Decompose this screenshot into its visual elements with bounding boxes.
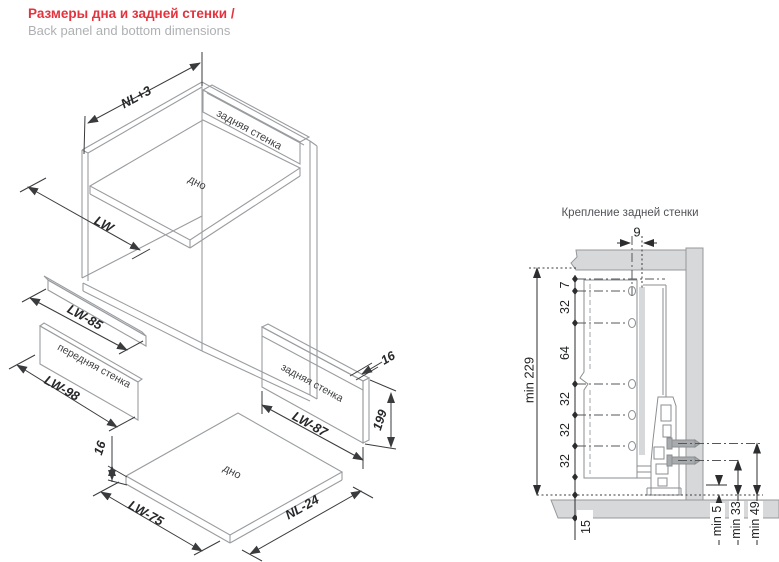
page-title: Размеры дна и задней стенки / [28, 6, 235, 23]
dim-chain-32d: 32 [558, 454, 572, 468]
exploded-view-drawing: NL+3 LW LW-85 LW-98 LW-87 199 16 LW-75 N… [0, 40, 470, 562]
label-bottom: дно [186, 173, 208, 192]
page-canvas: Размеры дна и задней стенки / Back panel… [0, 0, 779, 562]
dim-chain-32a: 32 [558, 300, 572, 314]
dim-back-panel-height: 199 [370, 408, 390, 432]
dim-overall-height: min 229 [522, 357, 537, 403]
label-bottom-part: дно [221, 462, 243, 481]
dim-chain-64: 64 [558, 346, 572, 360]
front-panel-part [40, 323, 142, 420]
dim-chain-7: 7 [558, 281, 572, 288]
dim-drawer-width: LW [92, 213, 118, 236]
rail-part [44, 276, 146, 346]
dim-back-panel-thickness: 16 [378, 348, 398, 368]
dim-back-panel-width: LW-87 [290, 408, 331, 440]
mounting-view-drawing: Крепление задней стенки 9 7 32 64 32 32 … [520, 200, 779, 562]
dim-clearance-min33: min 33 [729, 501, 743, 539]
back-panel-section [580, 280, 637, 478]
dim-floor-thickness: 15 [579, 520, 593, 534]
dim-bottom-width: LW-75 [126, 497, 167, 529]
dim-clearance-min5: min 5 [710, 506, 724, 537]
dim-clearance-min49: min 49 [748, 501, 762, 539]
dim-rail-width: LW-85 [65, 301, 106, 333]
page-subtitle: Back panel and bottom dimensions [28, 23, 235, 39]
mounting-title: Крепление задней стенки [561, 207, 698, 219]
dim-drawer-depth: NL+3 [118, 82, 154, 111]
dim-bottom-thickness: 16 [91, 438, 109, 457]
dim-chain-32c: 32 [558, 423, 572, 437]
dim-chain-32b: 32 [558, 392, 572, 406]
label-back-panel-part: задняя стенка [279, 361, 346, 405]
dim-hole-offset: 9 [633, 225, 640, 240]
cabinet-top-panel [571, 250, 686, 270]
page-header: Размеры дна и задней стенки / Back panel… [28, 6, 235, 39]
drawer-body-wireframe [82, 82, 317, 401]
dim-bottom-depth: NL-24 [283, 491, 323, 522]
